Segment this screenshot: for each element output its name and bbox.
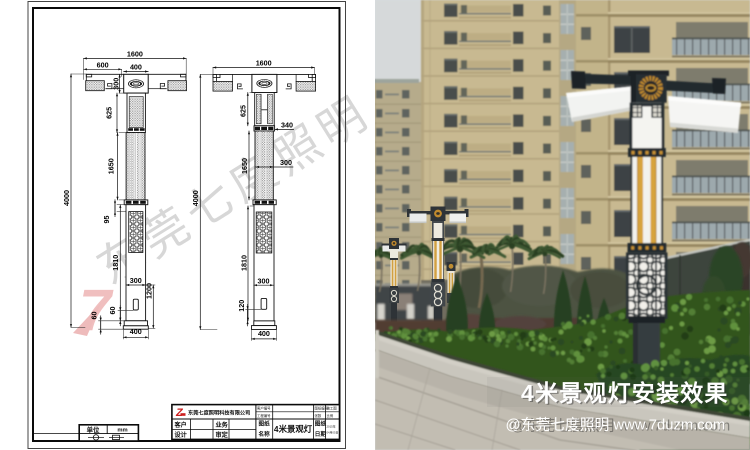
svg-text:审定: 审定 (216, 431, 229, 439)
svg-text:625: 625 (104, 107, 113, 119)
svg-text:400: 400 (258, 329, 270, 338)
svg-text:625: 625 (238, 105, 247, 117)
svg-text:60: 60 (108, 307, 117, 315)
svg-text:4米景观灯安装效果: 4米景观灯安装效果 (521, 380, 729, 406)
svg-text:比例: 比例 (327, 413, 334, 418)
svg-text:图纸: 图纸 (259, 420, 271, 428)
svg-text:1650: 1650 (240, 158, 249, 174)
svg-text:300: 300 (130, 276, 142, 285)
svg-text:300: 300 (112, 78, 121, 90)
svg-text:名称: 名称 (259, 430, 271, 438)
svg-text:400: 400 (130, 63, 142, 72)
svg-text:1810: 1810 (111, 255, 120, 271)
svg-text:mm: mm (117, 428, 127, 434)
svg-text:340: 340 (281, 121, 293, 130)
svg-text:@东莞七度照明 www.7duzm.com: @东莞七度照明 www.7duzm.com (506, 417, 726, 434)
svg-text:04月05日: 04月05日 (327, 431, 339, 435)
svg-text:60: 60 (90, 312, 99, 320)
svg-text:4000: 4000 (62, 190, 71, 206)
svg-text:图纸: 图纸 (315, 420, 327, 428)
svg-text:95: 95 (102, 216, 111, 224)
svg-text:120: 120 (237, 300, 246, 312)
svg-text:Z: Z (175, 407, 184, 419)
svg-text:业务: 业务 (216, 421, 229, 429)
svg-text:设计: 设计 (175, 431, 188, 439)
svg-text:400: 400 (130, 327, 142, 336)
svg-text:1810: 1810 (240, 255, 249, 271)
svg-text:600: 600 (97, 61, 109, 70)
svg-text:东莞七度照明科技有限公司: 东莞七度照明科技有限公司 (188, 409, 250, 417)
svg-text:1650: 1650 (106, 158, 115, 174)
svg-text:日期: 日期 (315, 430, 327, 438)
svg-text:单位: 单位 (87, 425, 100, 434)
svg-text:1200: 1200 (145, 283, 154, 299)
svg-text:300: 300 (258, 276, 270, 285)
svg-text:4米景观灯: 4米景观灯 (274, 424, 313, 434)
svg-text:客户: 客户 (174, 421, 187, 429)
svg-text:300: 300 (280, 158, 292, 167)
svg-text:施工图: 施工图 (327, 405, 338, 410)
svg-text:客户编号: 客户编号 (257, 405, 271, 410)
svg-text:张数: 张数 (315, 413, 322, 418)
svg-text:4000: 4000 (191, 190, 200, 206)
svg-text:1600: 1600 (256, 59, 272, 68)
svg-text:工程编号: 工程编号 (257, 413, 271, 418)
svg-text:1600: 1600 (127, 50, 143, 59)
svg-text:2015年: 2015年 (327, 425, 336, 429)
